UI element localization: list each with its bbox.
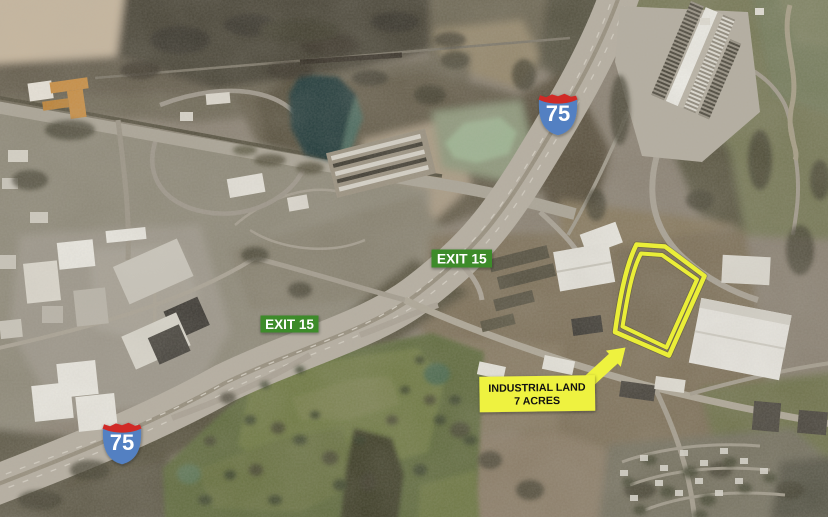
svg-text:75: 75 [546, 101, 571, 126]
svg-text:75: 75 [110, 430, 135, 455]
svg-text:7 ACRES: 7 ACRES [514, 395, 560, 408]
svg-text:INDUSTRIAL LAND: INDUSTRIAL LAND [488, 382, 586, 395]
svg-text:EXIT 15: EXIT 15 [437, 252, 487, 267]
svg-text:EXIT 15: EXIT 15 [265, 317, 314, 332]
